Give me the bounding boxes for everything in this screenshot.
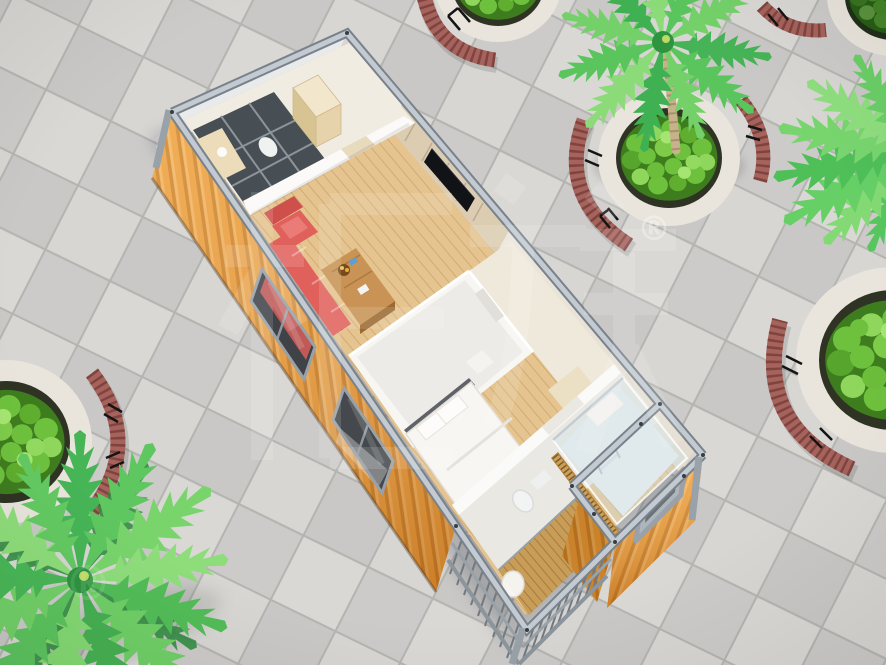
scene-canvas: ® ® xyxy=(0,0,886,665)
watermark-registered-mark: ® xyxy=(64,556,112,612)
watermark-registered-mark: ® xyxy=(637,209,671,249)
vignette xyxy=(0,0,886,665)
render-scene: 柜族 xyxy=(0,0,886,665)
